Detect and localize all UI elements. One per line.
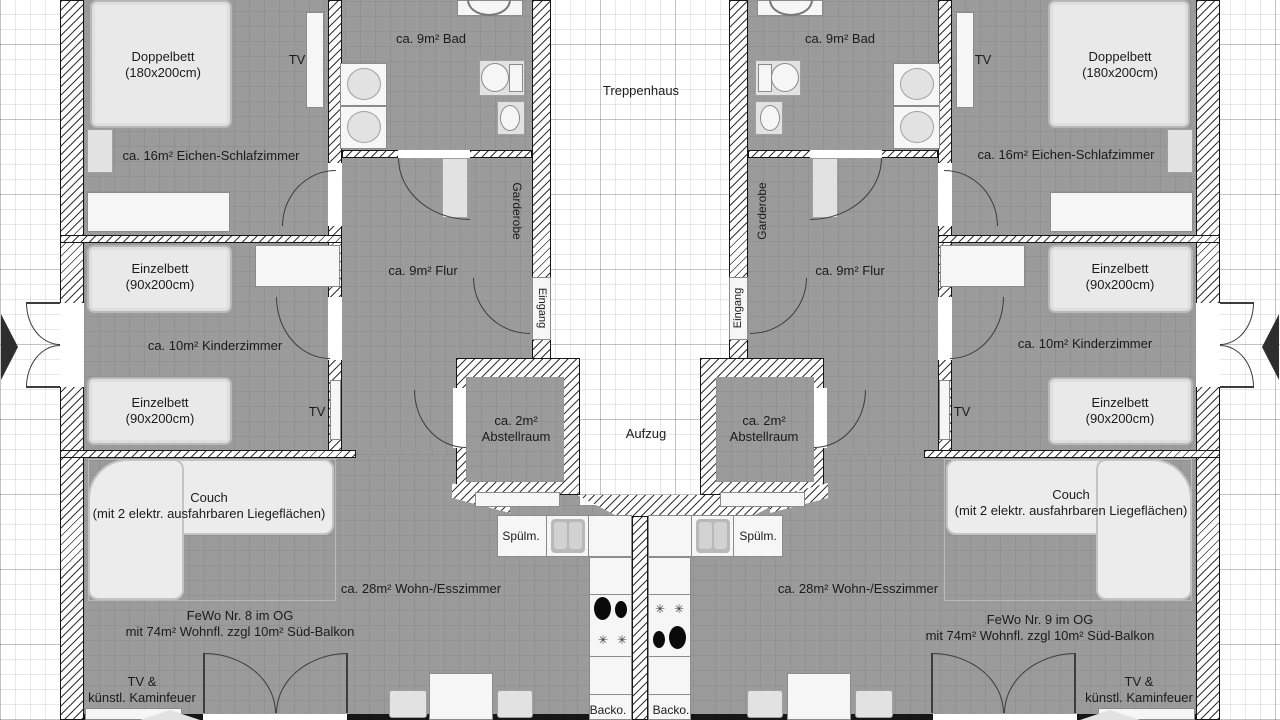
- kitchen-sink-cell-left: [546, 515, 589, 557]
- hall-label-left: ca. 9m² Flur: [388, 263, 457, 279]
- couch-label-right: Couch(mit 2 elektr. ausfahrbaren Liegefl…: [955, 487, 1188, 519]
- burner-icon: [653, 631, 665, 648]
- bidet-icon: [755, 101, 783, 135]
- single-bed-label-left-1: Einzelbett(90x200cm): [126, 261, 195, 293]
- floor-plan: Doppelbett(180x200cm) Doppelbett(180x200…: [0, 0, 1280, 720]
- dishwasher-label-left: Spülm.: [502, 529, 539, 543]
- awning-icon: [1262, 347, 1279, 380]
- sink-icon: [340, 63, 387, 106]
- bidet-icon: [497, 101, 525, 135]
- toilet-icon: [479, 60, 525, 96]
- sideboard-bedroom-right: [1050, 192, 1193, 232]
- door-gap-terrace-left: [203, 714, 347, 720]
- entrance-label-left: Eingang: [536, 288, 548, 328]
- kitchen-counter-right-1: [648, 557, 691, 595]
- stairwell-label: Treppenhaus: [603, 83, 679, 99]
- storage-label-left: ca. 2m²Abstellraum: [482, 413, 551, 445]
- chair-icon: [747, 690, 783, 718]
- unit-label-right: FeWo Nr. 9 im OGmit 74m² Wohnfl. zzgl 10…: [926, 612, 1155, 644]
- elevator-label: Aufzug: [626, 426, 666, 442]
- bedroom-label-right: ca. 16m² Eichen-Schlafzimmer: [978, 147, 1155, 163]
- door-gap-bath-right: [810, 150, 882, 158]
- living-label-left: ca. 28m² Wohn-/Esszimmer: [341, 581, 501, 597]
- door-arc: [26, 345, 60, 387]
- kitchen-counter-right-2: [648, 656, 691, 695]
- awning-icon: [1, 347, 18, 380]
- nightstand-right: [1167, 129, 1193, 173]
- entrance-label-right: Eingang: [732, 288, 744, 328]
- burner-icon: [615, 601, 627, 618]
- wall-center-spine: [632, 516, 648, 720]
- burner-star-icon: ✳: [674, 602, 684, 616]
- door-arc: [1220, 303, 1254, 345]
- awning-icon: [1, 314, 18, 347]
- single-bed-label-left-2: Einzelbett(90x200cm): [126, 395, 195, 427]
- door-leaf: [931, 653, 933, 713]
- bedroom-label-left: ca. 16m² Eichen-Schlafzimmer: [123, 148, 300, 164]
- door-gap-balcony-kids-right: [1196, 303, 1220, 387]
- living-label-right: ca. 28m² Wohn-/Esszimmer: [778, 581, 938, 597]
- double-bed-label-right: Doppelbett(180x200cm): [1082, 49, 1158, 81]
- door-leaf: [26, 386, 60, 388]
- couch-right-chaise: [1096, 459, 1192, 600]
- kitchen-corner-right: [648, 515, 692, 557]
- tv-unit-bedroom-right: [956, 12, 974, 108]
- kitchen-counter-left-1: [589, 557, 632, 595]
- door-leaf: [346, 653, 348, 713]
- wall-kids-bottom-left: [60, 450, 356, 458]
- single-bed-label-right-1: Einzelbett(90x200cm): [1086, 261, 1155, 293]
- couch-label-left: Couch(mit 2 elektr. ausfahrbaren Liegefl…: [93, 490, 326, 522]
- oven-label-right: Backo.: [653, 703, 690, 717]
- bath-label-left: ca. 9m² Bad: [396, 31, 466, 47]
- wardrobe-label-left: Garderobe: [510, 182, 524, 239]
- door-leaf: [1220, 386, 1254, 388]
- kids-label-right: ca. 10m² Kinderzimmer: [1018, 336, 1152, 352]
- unit-label-left: FeWo Nr. 8 im OGmit 74m² Wohnfl. zzgl 10…: [126, 608, 355, 640]
- tv-label-bedroom-left: TV: [289, 52, 306, 68]
- door-arc: [1220, 345, 1254, 387]
- door-leaf: [1074, 653, 1076, 713]
- chair-icon: [855, 690, 893, 718]
- wall-bedroom-bottom-left: [60, 235, 342, 243]
- double-bed-label-left: Doppelbett(180x200cm): [125, 49, 201, 81]
- tv-label-bedroom-right: TV: [975, 52, 992, 68]
- wardrobe-label-right: Garderobe: [755, 182, 769, 239]
- burner-icon: [669, 626, 686, 649]
- door-leaf: [26, 302, 60, 304]
- bath-label-right: ca. 9m² Bad: [805, 31, 875, 47]
- door-arc: [26, 303, 60, 345]
- wall-kids-bottom-right: [924, 450, 1220, 458]
- tv-label-kids-left: TV: [309, 404, 326, 420]
- nightstand-left: [87, 129, 113, 173]
- sink-icon: [893, 63, 940, 106]
- counter-slot-right: [720, 492, 805, 507]
- door-leaf: [203, 653, 205, 713]
- chair-icon: [389, 690, 427, 718]
- tv-fireplace-label-right: TV &künstl. Kaminfeuer: [1085, 674, 1193, 706]
- tv-label-kids-right: TV: [954, 404, 971, 420]
- door-leaf: [1220, 302, 1254, 304]
- kitchen-counter-left-2: [589, 656, 632, 695]
- sink-icon: [893, 106, 940, 149]
- tv-unit-kids-right: [939, 380, 950, 440]
- couch-left-chaise: [88, 459, 184, 600]
- awning-icon: [1262, 314, 1279, 347]
- toilet-icon: [755, 60, 801, 96]
- sink-icon: [340, 106, 387, 149]
- chair-icon: [497, 690, 533, 718]
- counter-slot-left: [475, 492, 560, 507]
- dining-table-left: [429, 673, 493, 720]
- door-gap-terrace-right: [933, 714, 1077, 720]
- tv-fireplace-label-left: TV &künstl. Kaminfeuer: [88, 674, 196, 706]
- single-bed-label-right-2: Einzelbett(90x200cm): [1086, 395, 1155, 427]
- dishwasher-label-right: Spülm.: [739, 529, 776, 543]
- sideboard-bedroom-left: [87, 192, 230, 232]
- burner-star-icon: ✳: [617, 633, 627, 647]
- dining-table-right: [787, 673, 851, 720]
- hall-label-right: ca. 9m² Flur: [815, 263, 884, 279]
- oven-label-left: Backo.: [590, 703, 627, 717]
- kitchen-corner-left: [588, 515, 632, 557]
- door-gap-bath-left: [398, 150, 470, 158]
- dresser-kids-left: [255, 245, 340, 287]
- wall-bedroom-bottom-right: [938, 235, 1220, 243]
- tv-unit-bedroom-left: [306, 12, 324, 108]
- dresser-kids-right: [940, 245, 1025, 287]
- door-gap-kids-left: [328, 297, 342, 360]
- door-gap-balcony-kids-left: [60, 303, 84, 387]
- storage-label-right: ca. 2m²Abstellraum: [730, 413, 799, 445]
- kitchen-sink-cell-right: [691, 515, 734, 557]
- tv-unit-kids-left: [330, 380, 341, 440]
- burner-star-icon: ✳: [655, 602, 665, 616]
- kids-label-left: ca. 10m² Kinderzimmer: [148, 338, 282, 354]
- burner-icon: [594, 597, 611, 620]
- burner-star-icon: ✳: [598, 633, 608, 647]
